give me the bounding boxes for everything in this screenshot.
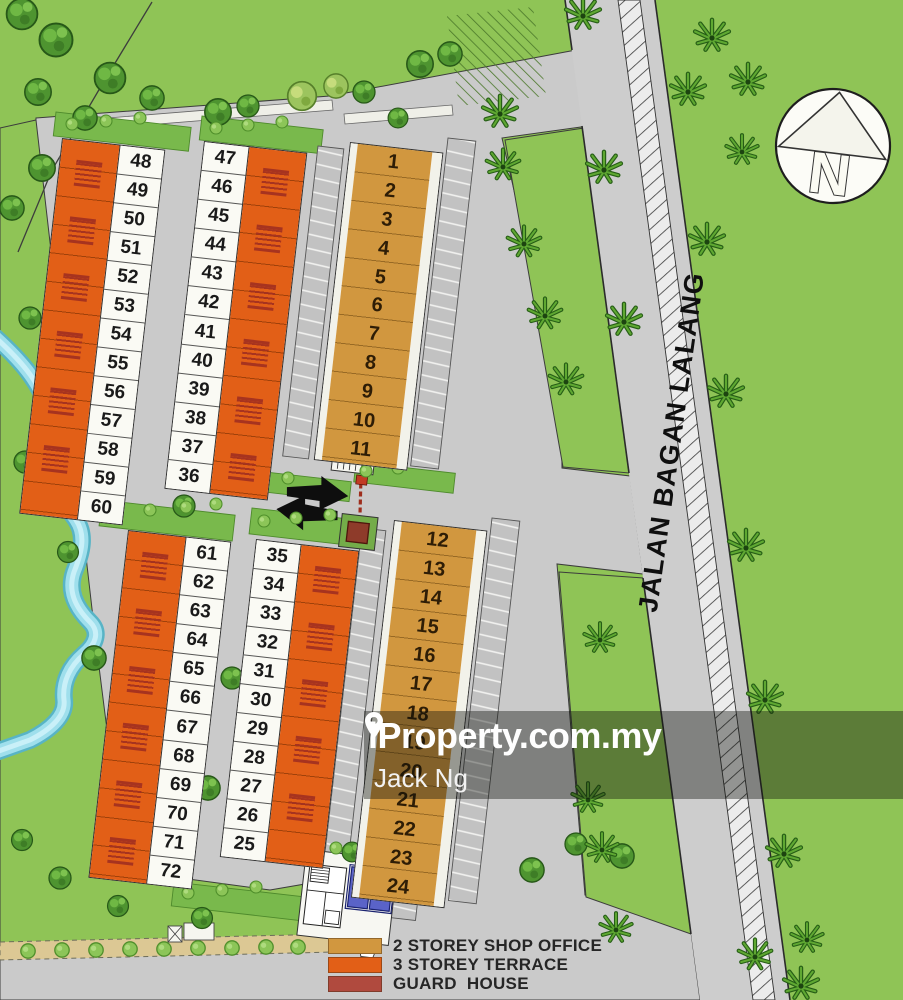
lot-72: 72: [147, 855, 194, 888]
legend-swatch-terrace: [328, 957, 382, 973]
roof-ornament-icon: [67, 216, 96, 245]
roof-ornament-icon: [107, 837, 136, 866]
roof-ornament-icon: [133, 609, 162, 638]
legend-item-guard-house: GUARD HOUSE: [328, 976, 602, 991]
legend-item-shop-office: 2 STOREY SHOP OFFICE: [328, 938, 602, 953]
watermark-brand: iProperty.com.my: [368, 715, 661, 757]
roof-ornament-icon: [260, 168, 289, 197]
roof-ornament-icon: [47, 387, 76, 416]
roof-ornament-icon: [113, 780, 142, 809]
lot-36: 36: [165, 460, 212, 493]
roof-ornament-icon: [240, 339, 269, 368]
legend-item-terrace: 3 STOREY TERRACE: [328, 957, 602, 972]
legend-label-shop-office: 2 STOREY SHOP OFFICE: [393, 936, 602, 956]
legend-swatch-guard-house: [328, 976, 382, 992]
roof-ornament-icon: [139, 551, 168, 580]
guard-house-icon: [346, 521, 369, 543]
lot-25: 25: [221, 828, 268, 861]
legend-swatch-shop-office: [328, 938, 382, 954]
roof-ornament-icon: [234, 396, 263, 425]
roof-ornament-icon: [227, 453, 256, 482]
roof-ornament-icon: [247, 282, 276, 311]
roof-ornament-icon: [60, 273, 89, 302]
roof-ornament-icon: [312, 565, 341, 594]
north-label: N: [805, 139, 854, 209]
roof-ornament-icon: [126, 666, 155, 695]
watermark-agent: Jack Ng: [374, 763, 903, 794]
roof-ornament-icon: [54, 330, 83, 359]
lot-60: 60: [78, 491, 125, 524]
roof-ornament-icon: [299, 679, 328, 708]
location-pin-icon: [364, 711, 384, 741]
roof-ornament-icon: [120, 723, 149, 752]
legend-label-guard-house: GUARD HOUSE: [393, 974, 529, 994]
roof-ornament-icon: [305, 622, 334, 651]
legend: 2 STOREY SHOP OFFICE 3 STOREY TERRACE GU…: [328, 938, 602, 995]
legend-label-terrace: 3 STOREY TERRACE: [393, 955, 568, 975]
roof-ornament-icon: [41, 445, 70, 474]
roof-ornament-icon: [73, 159, 102, 188]
watermark: iProperty.com.my Jack Ng: [364, 711, 903, 799]
roof-ornament-icon: [253, 225, 282, 254]
roof-ornament-icon: [292, 736, 321, 765]
roof-ornament-icon: [286, 793, 315, 822]
site-plan: N 48495051525354555657585960 47464544434…: [0, 0, 903, 1000]
